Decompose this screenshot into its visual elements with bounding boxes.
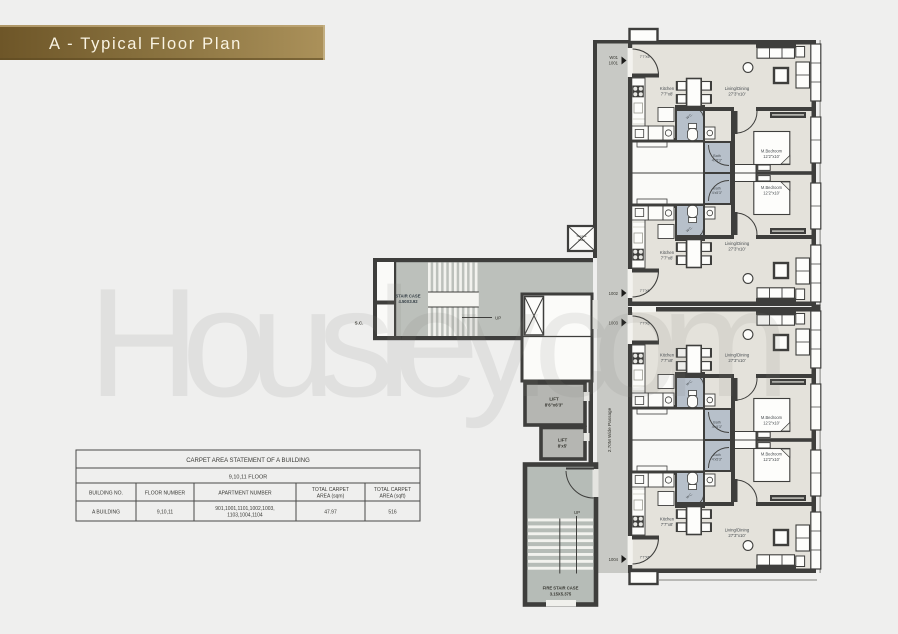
svg-text:APARTMENT NUMBER: APARTMENT NUMBER [218,491,272,497]
svg-text:TOTAL CARPET: TOTAL CARPET [312,487,349,493]
svg-text:Bath: Bath [713,187,720,191]
svg-text:901,1001,1101,1002,1003,: 901,1001,1101,1002,1003, [215,506,274,512]
svg-text:BUILDING NO.: BUILDING NO. [89,491,123,497]
svg-text:Kitchen: Kitchen [660,250,675,255]
svg-text:4'x5'3": 4'x5'3" [712,191,723,195]
svg-text:UP: UP [574,510,580,515]
svg-text:12'2"x10': 12'2"x10' [763,154,780,159]
svg-text:4'x5'3": 4'x5'3" [712,458,723,462]
svg-text:Bath: Bath [713,154,720,158]
svg-text:27'3"x10': 27'3"x10' [728,92,745,97]
svg-text:A - Typical Floor Plan: A - Typical Floor Plan [49,35,242,53]
svg-text:Living/Dining: Living/Dining [725,528,750,533]
svg-text:Housley.com: Housley.com [88,256,790,429]
svg-text:516: 516 [388,510,397,516]
svg-text:7'7"X6': 7'7"X6' [640,55,651,59]
svg-text:9,10,11: 9,10,11 [157,510,174,516]
svg-text:FLOOR NUMBER: FLOOR NUMBER [145,491,186,497]
svg-text:9,10,11 FLOOR: 9,10,11 FLOOR [229,475,267,481]
svg-text:1001: 1001 [609,61,619,66]
svg-text:A BUILDING: A BUILDING [92,510,120,516]
svg-text:7'7"X6': 7'7"X6' [640,556,651,560]
svg-text:Living/Dining: Living/Dining [725,86,750,91]
svg-text:FIRE STAIR CASE: FIRE STAIR CASE [543,586,579,591]
svg-text:Kitchen: Kitchen [660,517,675,522]
svg-text:3.15X5.375: 3.15X5.375 [550,592,572,597]
svg-text:Kitchen: Kitchen [660,86,675,91]
svg-text:AREA (sqm): AREA (sqm) [317,494,345,500]
svg-text:7'7"x8': 7'7"x8' [661,522,674,527]
svg-text:M.Bedroom: M.Bedroom [761,185,783,190]
svg-text:4'x5'3": 4'x5'3" [712,159,723,163]
svg-text:27'3"x10': 27'3"x10' [728,247,745,252]
svg-text:47.97: 47.97 [324,510,337,516]
svg-text:8'x5': 8'x5' [558,444,567,449]
svg-text:12'2"x10': 12'2"x10' [763,457,780,462]
svg-text:CARPET AREA STATEMENT OF A BUI: CARPET AREA STATEMENT OF A BUILDING [186,458,310,464]
svg-text:TOTAL CARPET: TOTAL CARPET [374,487,411,493]
svg-text:1004: 1004 [609,557,619,562]
svg-text:W01: W01 [609,55,618,60]
svg-text:AREA (sqft): AREA (sqft) [379,494,405,500]
svg-text:27'3"x10': 27'3"x10' [728,533,745,538]
svg-text:Bath: Bath [713,453,720,457]
svg-text:Duct: Duct [578,238,584,242]
svg-text:1103,1004,1104: 1103,1004,1104 [227,513,263,519]
svg-text:12'2"x10': 12'2"x10' [763,191,780,196]
svg-text:Living/Dining: Living/Dining [725,241,750,246]
svg-text:7'7"x8': 7'7"x8' [661,92,674,97]
svg-text:M.Bedroom: M.Bedroom [761,452,783,457]
svg-text:M.Bedroom: M.Bedroom [761,149,783,154]
svg-text:LIFT: LIFT [558,438,568,443]
